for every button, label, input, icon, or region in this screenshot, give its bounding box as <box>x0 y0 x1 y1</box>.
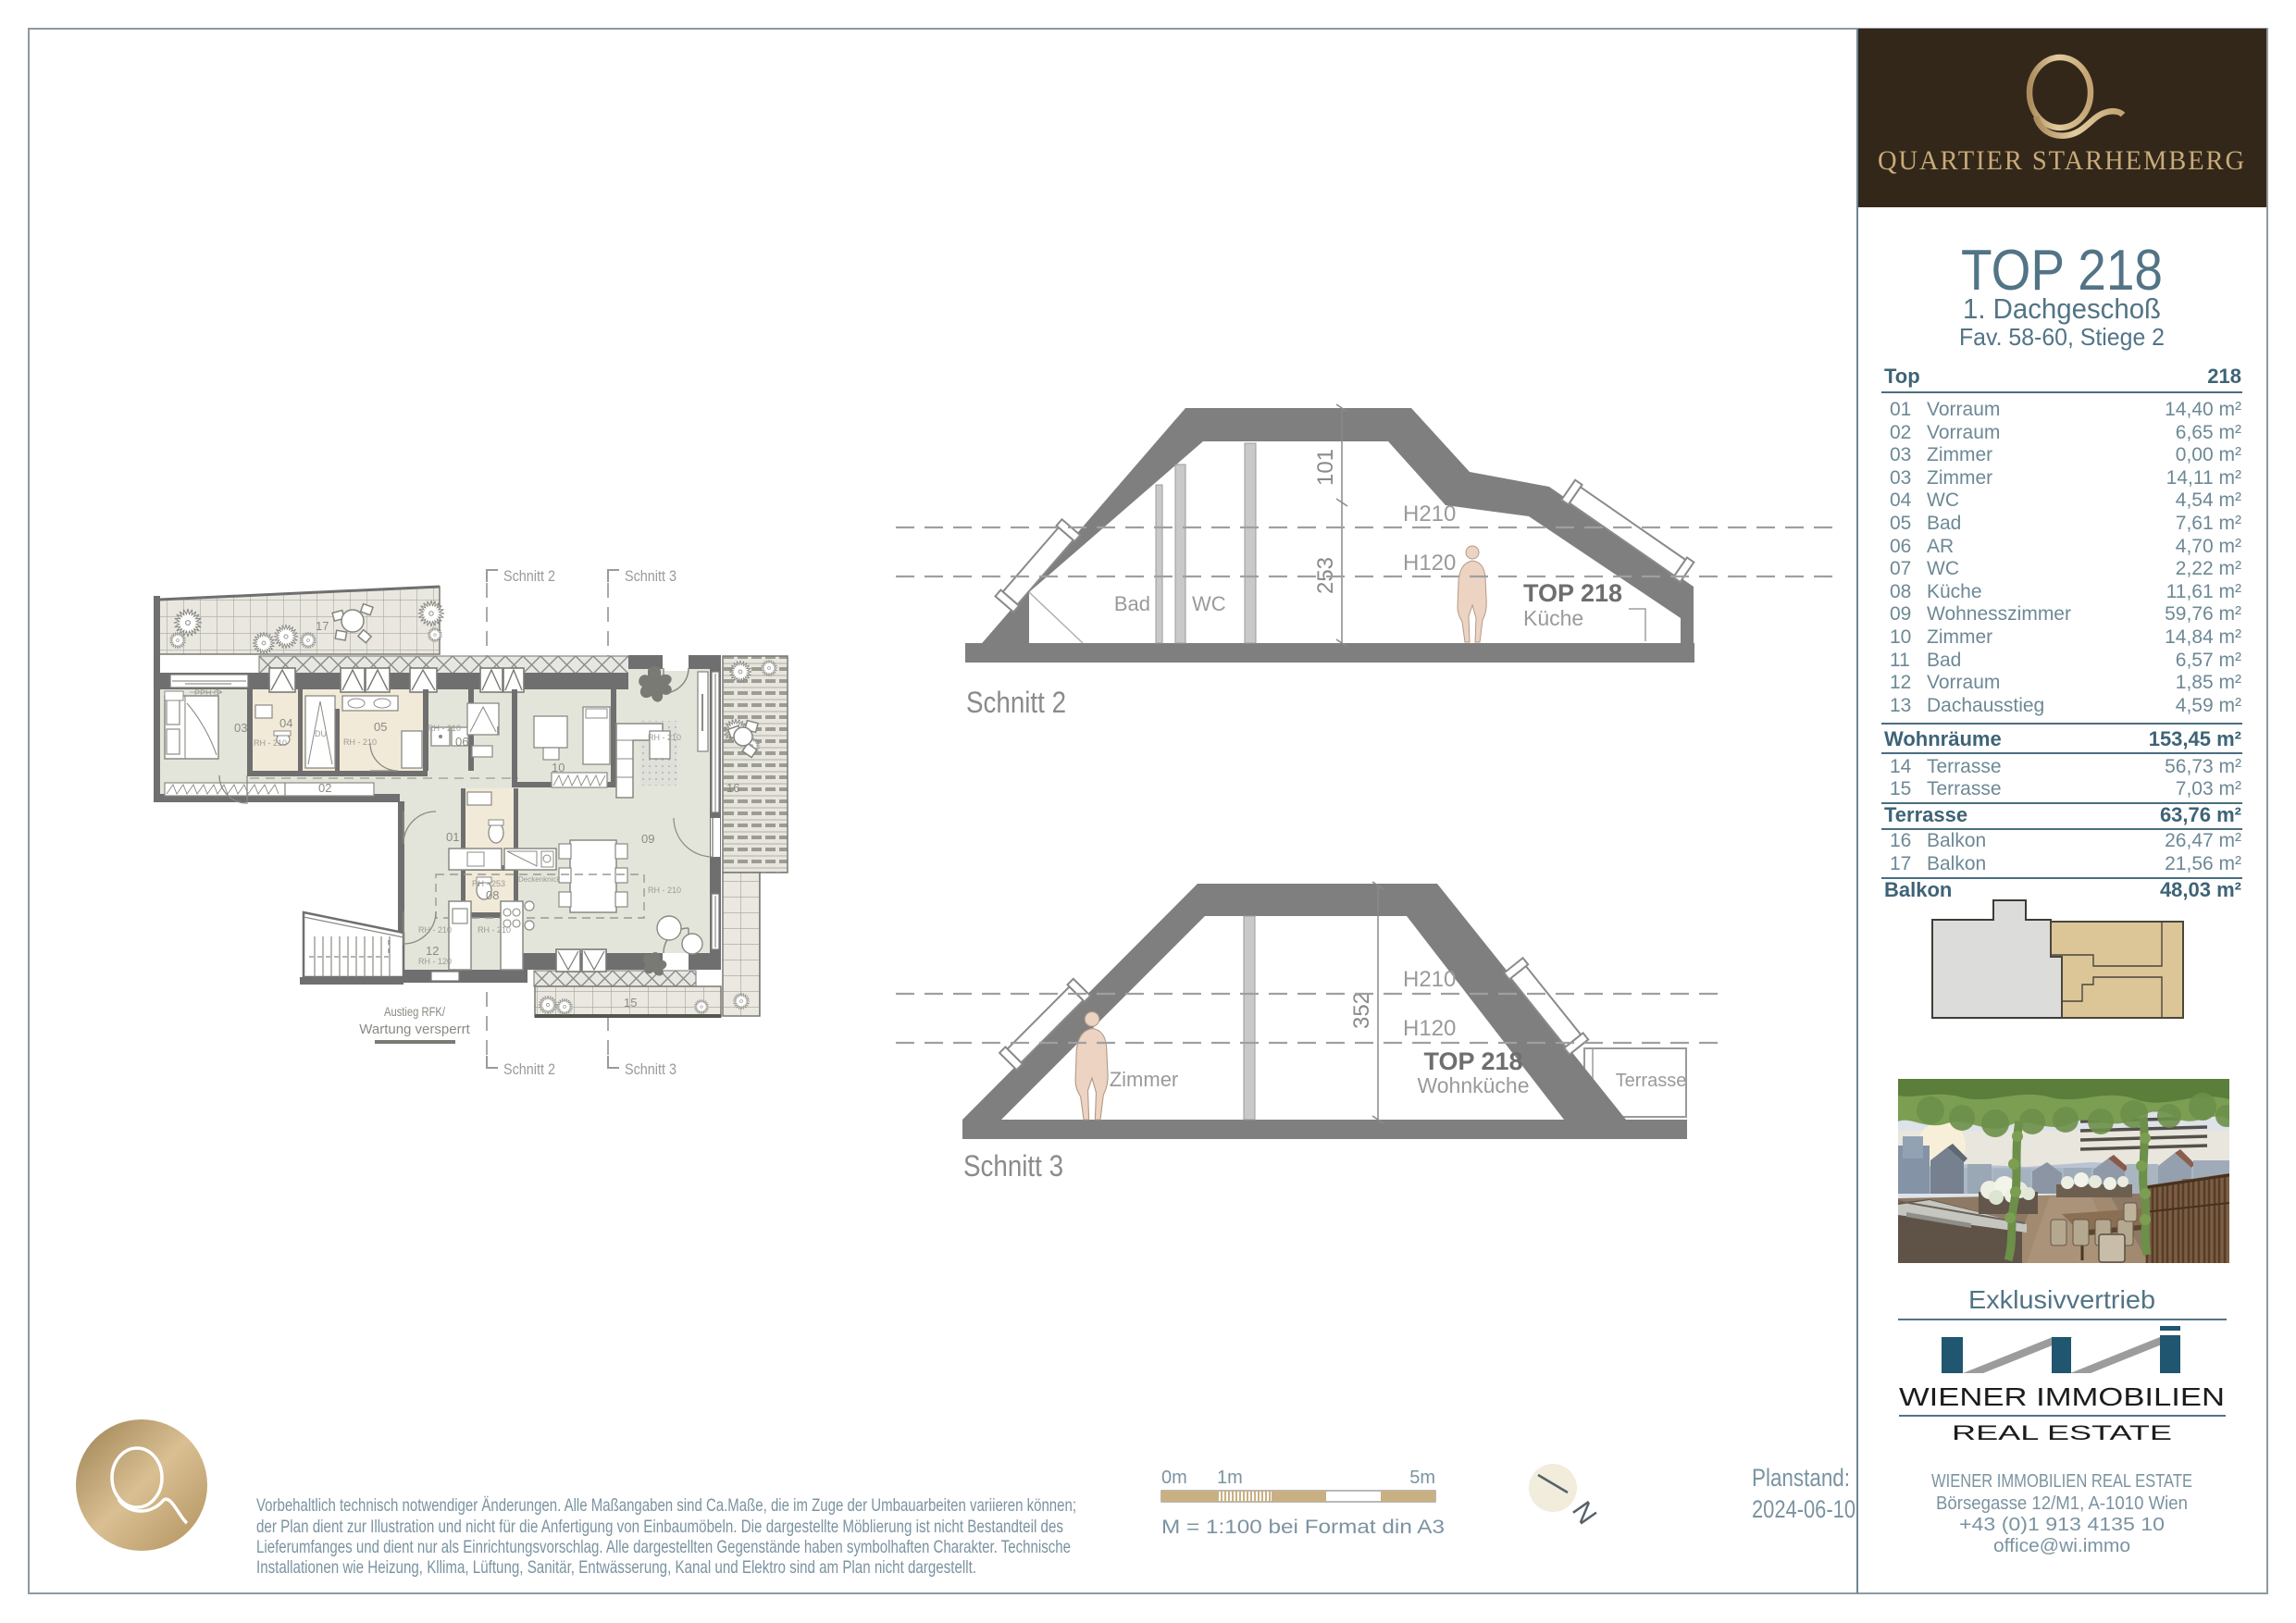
svg-text:AR: AR <box>1927 536 1954 557</box>
svg-text:04: 04 <box>279 716 292 730</box>
svg-text:Planstand:: Planstand: <box>1752 1464 1850 1492</box>
svg-text:03: 03 <box>1890 467 1911 489</box>
svg-text:Terrasse: Terrasse <box>1884 803 1967 826</box>
svg-text:Zimmer: Zimmer <box>1110 1068 1179 1091</box>
svg-text:Terrasse: Terrasse <box>1927 756 2002 777</box>
svg-text:17: 17 <box>1890 853 1911 874</box>
svg-text:21,56 m²: 21,56 m² <box>2165 853 2241 874</box>
svg-text:05: 05 <box>1890 513 1911 534</box>
svg-text:Zimmer: Zimmer <box>1927 626 1992 648</box>
svg-text:H210: H210 <box>1403 502 1456 527</box>
svg-text:Wohnküche: Wohnküche <box>1417 1073 1529 1097</box>
svg-text:H120: H120 <box>1403 551 1456 576</box>
svg-text:Wohnesszimmer: Wohnesszimmer <box>1927 603 2071 625</box>
svg-text:1,85 m²: 1,85 m² <box>2176 672 2241 693</box>
svg-text:Schnitt 3: Schnitt 3 <box>625 567 676 585</box>
svg-text:WIENER IMMOBILIEN REAL ESTATE: WIENER IMMOBILIEN REAL ESTATE <box>1931 1471 2192 1492</box>
svg-text:10: 10 <box>1890 626 1911 648</box>
svg-text:M = 1:100 bei Format din A3: M = 1:100 bei Format din A3 <box>1161 1517 1445 1538</box>
svg-text:RH - 210: RH - 210 <box>343 737 377 747</box>
svg-text:DU: DU <box>315 729 327 738</box>
svg-text:I: I <box>496 724 500 737</box>
svg-text:office@wi.immo: office@wi.immo <box>1993 1536 2130 1556</box>
svg-text:15: 15 <box>1890 778 1911 799</box>
svg-text:Bad: Bad <box>1114 592 1150 615</box>
svg-text:16: 16 <box>726 781 739 795</box>
svg-text:Bad: Bad <box>1927 513 1961 534</box>
svg-text:Austieg RFK/: Austieg RFK/ <box>384 1004 445 1019</box>
svg-text:06: 06 <box>1890 536 1911 557</box>
svg-text:03: 03 <box>1890 444 1911 465</box>
svg-text:16: 16 <box>1890 830 1911 851</box>
svg-text:4,59 m²: 4,59 m² <box>2176 695 2241 716</box>
svg-text:RH - 210: RH - 210 <box>478 925 511 935</box>
svg-text:7,61 m²: 7,61 m² <box>2176 513 2241 534</box>
svg-text:der Plan dient zur Illustratio: der Plan dient zur Illustration und nich… <box>256 1517 1063 1537</box>
svg-text:56,73 m²: 56,73 m² <box>2165 756 2241 777</box>
svg-text:02: 02 <box>318 781 331 795</box>
svg-text:Küche: Küche <box>1523 606 1583 630</box>
svg-text:153,45 m²: 153,45 m² <box>2149 727 2241 750</box>
svg-text:7,03 m²: 7,03 m² <box>2176 778 2241 799</box>
svg-text:11: 11 <box>1890 650 1910 671</box>
svg-text:WIENER IMMOBILIEN: WIENER IMMOBILIEN <box>1899 1382 2225 1411</box>
svg-text:Schnitt 3: Schnitt 3 <box>625 1060 676 1078</box>
svg-text:218: 218 <box>2207 365 2241 388</box>
svg-text:1m: 1m <box>1217 1468 1243 1488</box>
svg-text:6,65 m²: 6,65 m² <box>2176 422 2241 443</box>
svg-text:WC: WC <box>1192 592 1226 615</box>
svg-text:Balkon: Balkon <box>1927 830 1986 851</box>
svg-text:01: 01 <box>1890 399 1911 420</box>
svg-text:15: 15 <box>624 996 637 1010</box>
svg-text:Balkon: Balkon <box>1927 853 1986 874</box>
svg-text:05: 05 <box>374 720 387 734</box>
svg-text:REAL ESTATE: REAL ESTATE <box>1952 1421 2172 1444</box>
svg-text:Zimmer: Zimmer <box>1927 467 1992 489</box>
svg-text:08: 08 <box>486 888 499 902</box>
svg-text:Bad: Bad <box>1927 650 1961 671</box>
svg-text:03: 03 <box>234 721 247 735</box>
svg-text:12: 12 <box>1890 672 1911 693</box>
svg-text:Fav. 58-60, Stiege 2: Fav. 58-60, Stiege 2 <box>1959 323 2165 351</box>
svg-text:Schnitt 2: Schnitt 2 <box>966 686 1066 719</box>
svg-text:Top: Top <box>1884 365 1920 388</box>
svg-text:17: 17 <box>316 619 329 633</box>
svg-text:Küche: Küche <box>1927 581 1982 602</box>
svg-text:H210: H210 <box>1403 967 1456 992</box>
svg-text:5m: 5m <box>1409 1468 1435 1488</box>
svg-text:Dachausstieg: Dachausstieg <box>1927 695 2044 716</box>
svg-text:TOP 218: TOP 218 <box>1523 579 1622 607</box>
svg-text:08: 08 <box>1890 581 1911 602</box>
svg-text:4,54 m²: 4,54 m² <box>2176 489 2241 511</box>
svg-text:13: 13 <box>1890 695 1911 716</box>
svg-text:WC: WC <box>1927 489 1959 511</box>
svg-text:Börsegasse 12/M1, A-1010 Wien: Börsegasse 12/M1, A-1010 Wien <box>1936 1493 2188 1514</box>
svg-text:QUARTIER STARHEMBERG: QUARTIER STARHEMBERG <box>1878 145 2246 176</box>
svg-text:RH - 210: RH - 210 <box>254 738 287 748</box>
svg-text:WC: WC <box>1927 558 1959 579</box>
svg-text:63,76 m²: 63,76 m² <box>2160 803 2241 826</box>
svg-text:04: 04 <box>1890 489 1912 511</box>
svg-text:10: 10 <box>552 761 565 774</box>
svg-text:Installationen wie Heizung, Kl: Installationen wie Heizung, Kllima, Lüft… <box>256 1557 976 1578</box>
svg-text:Vorbehaltlich technisch notwen: Vorbehaltlich technisch notwendiger Ände… <box>256 1495 1076 1516</box>
svg-text:14: 14 <box>1890 756 1912 777</box>
svg-text:12: 12 <box>426 944 439 958</box>
svg-text:09: 09 <box>641 832 654 846</box>
svg-text:RH - 120: RH - 120 <box>418 957 452 966</box>
svg-text:101: 101 <box>1313 449 1338 486</box>
svg-text:+43 (0)1 913 4135 10: +43 (0)1 913 4135 10 <box>1959 1515 2165 1535</box>
svg-text:09: 09 <box>1890 603 1911 625</box>
svg-text:01: 01 <box>446 830 459 844</box>
svg-text:4,70 m²: 4,70 m² <box>2176 536 2241 557</box>
svg-text:Zimmer: Zimmer <box>1927 444 1992 465</box>
svg-text:Schnitt 2: Schnitt 2 <box>503 567 555 585</box>
svg-text:Wohnräume: Wohnräume <box>1884 727 2002 750</box>
svg-text:0m: 0m <box>1161 1468 1187 1488</box>
svg-text:07: 07 <box>1890 558 1911 579</box>
svg-text:11,61 m²: 11,61 m² <box>2166 581 2241 602</box>
svg-text:Wartung versperrt: Wartung versperrt <box>359 1022 470 1037</box>
svg-text:06: 06 <box>455 735 468 749</box>
svg-text:352: 352 <box>1349 992 1374 1029</box>
svg-text:RH - 210: RH - 210 <box>648 733 681 742</box>
svg-text:Schnitt 2: Schnitt 2 <box>503 1060 555 1078</box>
svg-text:TOP 218: TOP 218 <box>1423 1047 1522 1075</box>
svg-text:Deckenknick: Deckenknick <box>518 875 561 884</box>
svg-text:14,11 m²: 14,11 m² <box>2166 467 2241 489</box>
svg-text:59,76 m²: 59,76 m² <box>2165 603 2241 625</box>
svg-text:RH - 253: RH - 253 <box>472 879 505 888</box>
svg-text:Lieferumfanges und dient nur a: Lieferumfanges und dient nur als Einrich… <box>256 1537 1071 1557</box>
svg-text:PPH.0: PPH.0 <box>194 688 218 698</box>
svg-text:Terrasse: Terrasse <box>1616 1071 1687 1091</box>
svg-text:6,57 m²: 6,57 m² <box>2176 650 2241 671</box>
svg-text:RH - 210: RH - 210 <box>648 886 681 895</box>
svg-text:14,84 m²: 14,84 m² <box>2165 626 2241 648</box>
svg-text:1. Dachgeschoß: 1. Dachgeschoß <box>1963 292 2161 325</box>
svg-text:Schnitt 3: Schnitt 3 <box>963 1149 1063 1183</box>
svg-text:Exklusivvertrieb: Exklusivvertrieb <box>1968 1285 2155 1314</box>
svg-text:48,03 m²: 48,03 m² <box>2160 878 2241 901</box>
svg-text:02: 02 <box>1890 422 1911 443</box>
svg-text:2,22 m²: 2,22 m² <box>2176 558 2241 579</box>
svg-text:Vorraum: Vorraum <box>1927 672 2000 693</box>
svg-text:26,47 m²: 26,47 m² <box>2165 830 2241 851</box>
svg-text:14,40 m²: 14,40 m² <box>2165 399 2241 420</box>
svg-text:0,00 m²: 0,00 m² <box>2176 444 2241 465</box>
svg-text:Vorraum: Vorraum <box>1927 422 2000 443</box>
svg-text:Vorraum: Vorraum <box>1927 399 2000 420</box>
svg-text:RH - 210: RH - 210 <box>428 724 461 733</box>
svg-text:Terrasse: Terrasse <box>1927 778 2002 799</box>
svg-text:H120: H120 <box>1403 1016 1456 1041</box>
svg-text:Balkon: Balkon <box>1884 878 1952 901</box>
svg-text:2024-06-10: 2024-06-10 <box>1752 1495 1855 1523</box>
svg-text:RH - 210: RH - 210 <box>418 925 452 935</box>
